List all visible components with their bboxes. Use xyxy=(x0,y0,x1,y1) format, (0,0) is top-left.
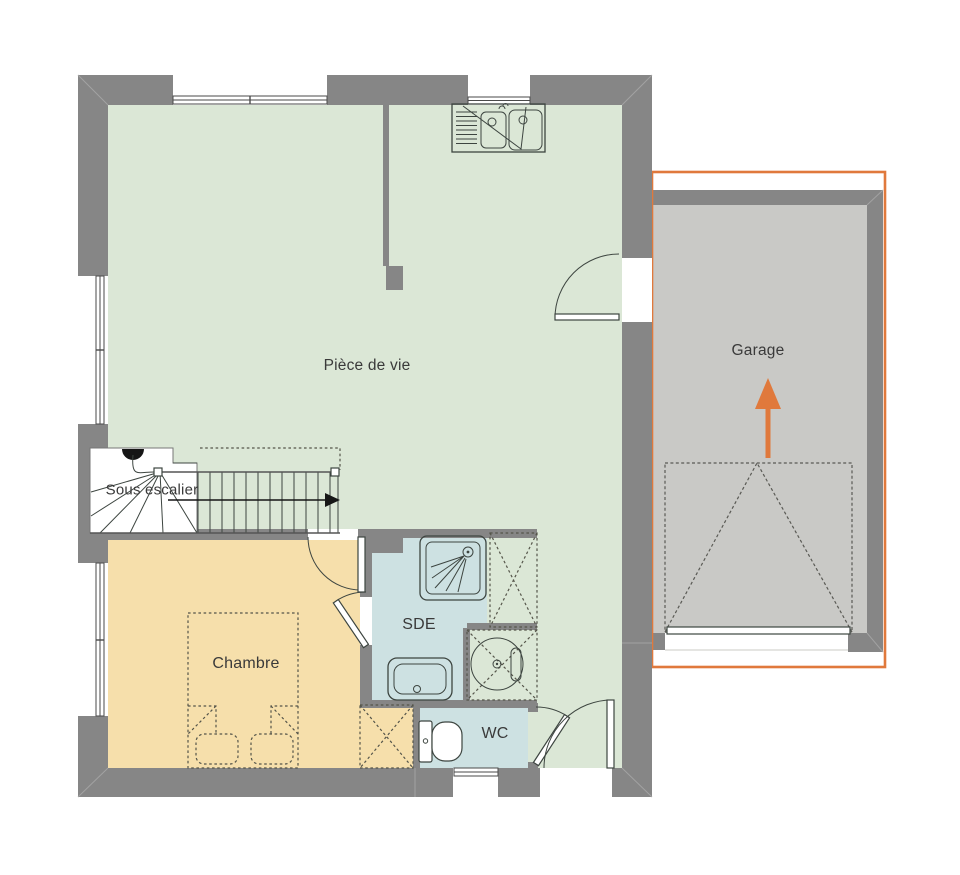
garage-wall-right xyxy=(867,190,883,652)
wc-top-wall xyxy=(360,700,537,708)
wc-right-wall-stub-top xyxy=(528,703,538,712)
room-label-sous-escalier: Sous escalier xyxy=(106,482,199,499)
room-label-sde: SDE xyxy=(402,616,436,634)
room-label-garage: Garage xyxy=(732,342,785,360)
window-top-left xyxy=(173,96,327,104)
toilet xyxy=(419,721,462,762)
garage-wall-top xyxy=(652,190,883,205)
garage-door xyxy=(667,627,850,634)
room-label-wc: WC xyxy=(481,725,508,743)
floor-plan-drawing xyxy=(0,0,960,875)
opening-door-garage xyxy=(622,258,652,322)
floor-plan-page: Pièce de vie Garage Chambre SDE WC Sous … xyxy=(0,0,960,875)
kitchen-partition-post xyxy=(386,266,403,290)
bedroom-floor xyxy=(108,540,360,768)
window-living-left xyxy=(96,276,104,424)
garage-zone xyxy=(652,172,885,667)
handrail-post-right xyxy=(331,468,339,476)
window-wc xyxy=(454,768,498,776)
garage-wall-stub-left xyxy=(652,633,665,650)
opening-front-door xyxy=(540,768,612,797)
bedroom-sde-wall-lower xyxy=(360,645,372,708)
garage-wall-stub-right xyxy=(848,633,883,652)
room-label-chambre: Chambre xyxy=(212,655,279,673)
garage-floor xyxy=(652,205,867,633)
kitchen-partition xyxy=(383,105,389,266)
window-bedroom-left xyxy=(96,563,104,716)
window-kitchen xyxy=(468,97,530,104)
room-label-piece-de-vie: Pièce de vie xyxy=(324,357,411,375)
bedroom-door-opening xyxy=(308,529,358,540)
handrail-post-left xyxy=(154,468,162,476)
